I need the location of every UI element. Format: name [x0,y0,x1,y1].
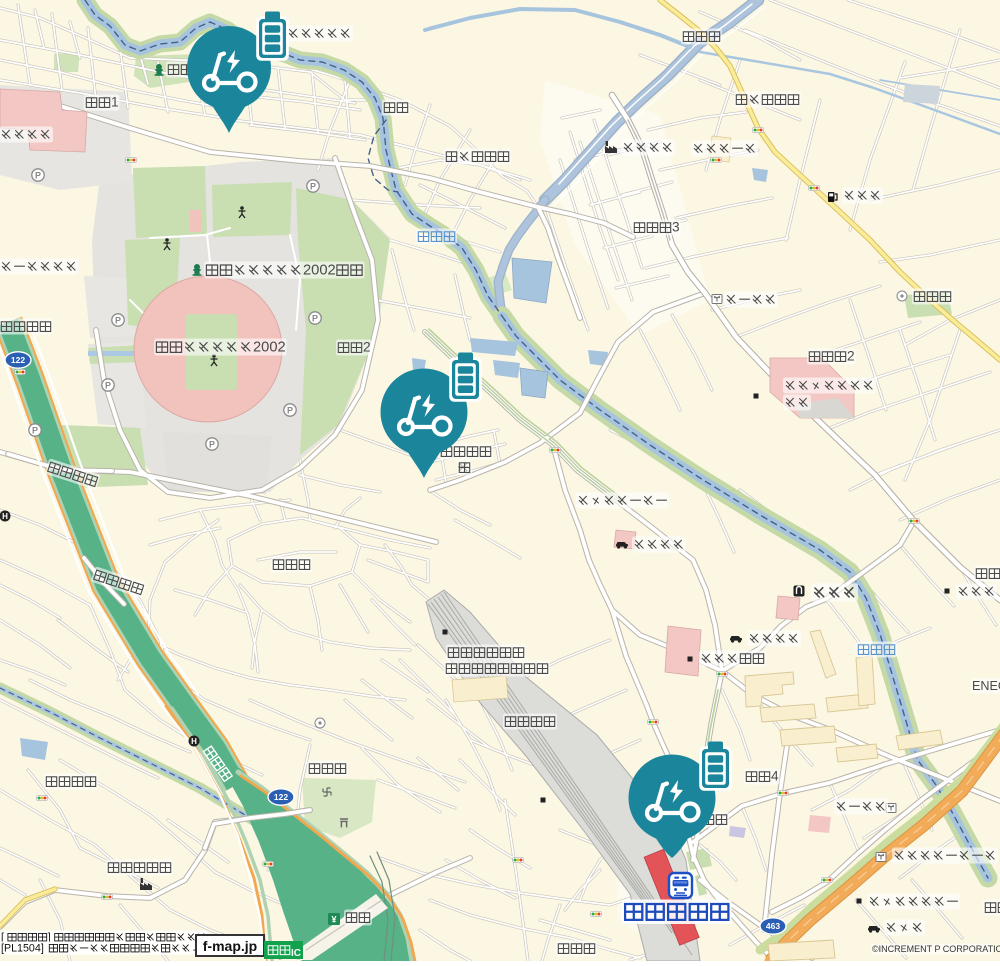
svg-text:H: H [2,512,8,521]
svg-text:f-map.jp: f-map.jp [203,938,257,954]
svg-text:ENEOS: ENEOS [972,679,1000,693]
svg-text:P: P [310,181,316,191]
svg-text:[PL1504]: [PL1504] [1,942,44,954]
svg-text:P: P [32,425,38,435]
svg-text:P: P [287,405,293,415]
svg-text:2002: 2002 [253,340,286,356]
svg-text:H: H [191,737,197,746]
svg-text:IC: IC [291,948,301,959]
svg-text:463: 463 [766,921,780,931]
svg-text:4: 4 [771,769,779,784]
svg-text:P: P [209,439,215,449]
svg-text:P: P [35,170,41,180]
svg-text:122: 122 [11,355,25,365]
svg-text:P: P [115,315,121,325]
svg-text:2: 2 [847,349,855,364]
svg-text:1: 1 [111,95,119,110]
svg-text:2002: 2002 [303,263,336,279]
svg-text:3: 3 [672,220,680,235]
svg-text:P: P [312,313,318,323]
svg-text:122: 122 [274,792,288,802]
svg-text:©INCREMENT P CORPORATION: ©INCREMENT P CORPORATION [872,944,1000,954]
svg-text:P: P [105,380,111,390]
svg-text:¥: ¥ [331,915,336,925]
svg-text:2: 2 [363,340,371,355]
